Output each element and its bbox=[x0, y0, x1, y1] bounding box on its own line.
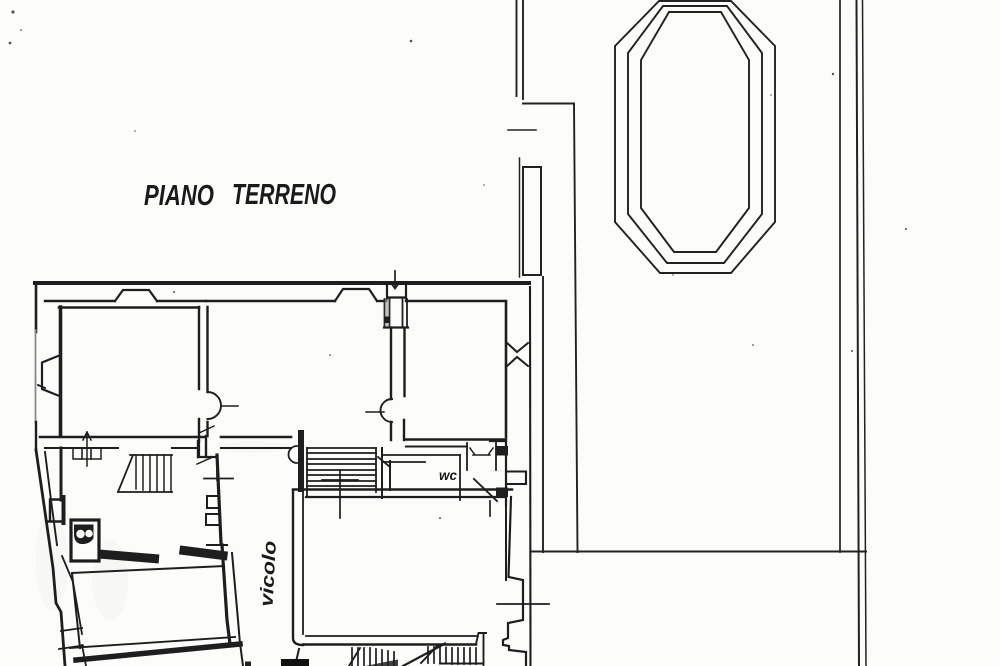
svg-text:TERRENO: TERRENO bbox=[232, 179, 336, 211]
svg-text:vicolo: vicolo bbox=[256, 540, 280, 607]
svg-text:PIANO: PIANO bbox=[144, 180, 214, 212]
svg-text:wc: wc bbox=[439, 467, 457, 483]
